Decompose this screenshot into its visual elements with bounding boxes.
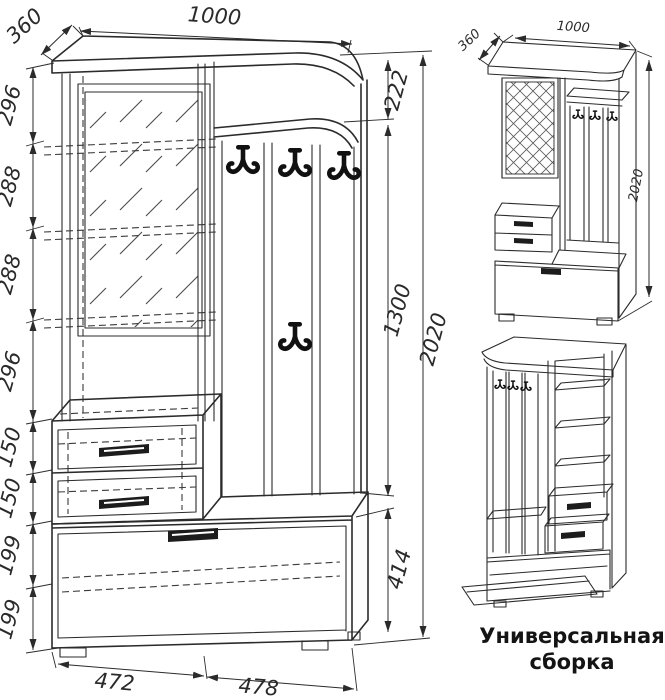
dim-label-left: 288 (0, 252, 26, 297)
drawer-unit (52, 394, 221, 524)
dim-bottom-widths: 472 478 (52, 648, 357, 700)
bottom-cabinet (52, 492, 368, 657)
dim-depth: 360 (1, 3, 83, 60)
caption-line-1: Универсальная (479, 624, 664, 648)
iso-view-universal (462, 337, 626, 607)
front-view: 1000 360 296 288 288 296 (0, 2, 452, 700)
drawing-page: 1000 360 296 288 288 296 (0, 0, 665, 700)
dim-label-left: 288 (0, 164, 26, 209)
iso2-side-panel (612, 345, 626, 588)
coat-hook-icon (280, 150, 309, 174)
dim-label-total-height: 2020 (415, 310, 452, 368)
coat-hook-icon (508, 381, 518, 389)
iso2-open-door (462, 576, 597, 605)
iso-bottom-cabinet (495, 250, 626, 325)
dim-label-width-top: 1000 (187, 2, 242, 30)
iso-canopy (488, 42, 636, 81)
dim-label-niche: 222 (379, 68, 413, 113)
coat-hook-icon (228, 147, 257, 171)
iso2-bottom-cabinet (462, 550, 610, 607)
coat-hook-icon (607, 112, 617, 120)
iso-dim-height: 2020 (626, 168, 647, 203)
iso-shelf-hooks (567, 88, 629, 243)
dim-label-depth: 360 (1, 3, 47, 48)
coat-hook-icon (573, 110, 583, 118)
dim-left-chain: 296 288 288 296 150 150 199 199 (0, 63, 58, 653)
canopy-shelf (52, 36, 363, 86)
iso-mirror (502, 78, 558, 178)
dim-label-left: 296 (0, 349, 26, 394)
iso-view-assembled: 360 1000 2020 (455, 19, 652, 325)
coat-hook-panel (222, 80, 367, 497)
dim-label-left: 296 (0, 83, 26, 128)
coat-hook-icon (495, 380, 505, 388)
dim-label-left: 150 (0, 425, 26, 470)
coat-hook-icon (521, 382, 531, 390)
dim-label-cabinet: 414 (382, 547, 416, 592)
iso-drawer-unit (495, 203, 559, 252)
iso-dim-depth: 360 (455, 26, 483, 54)
dim-label-bottom-right: 478 (238, 673, 280, 700)
dim-label-bottom-left: 472 (94, 668, 136, 695)
caption-line-2: сборка (530, 650, 615, 674)
dim-width-top: 1000 (79, 2, 352, 53)
middle-shelf (214, 119, 358, 148)
technical-drawing-svg: 1000 360 296 288 288 296 (0, 0, 665, 700)
iso2-hook-panel (487, 367, 546, 558)
dim-label-left: 199 (0, 533, 26, 578)
dim-label-panel: 1300 (379, 281, 416, 339)
dim-label-left: 150 (0, 476, 26, 521)
left-side-panel (62, 74, 83, 421)
dim-label-left: 199 (0, 597, 26, 642)
coat-hook-icon (590, 111, 600, 119)
front-view-dimensions: 1000 360 296 288 288 296 (0, 2, 452, 700)
mirror-hatch (86, 93, 201, 327)
iso-dim-width: 1000 (556, 19, 590, 36)
coat-hook-icon (280, 324, 309, 348)
cabinet-door (58, 526, 346, 638)
